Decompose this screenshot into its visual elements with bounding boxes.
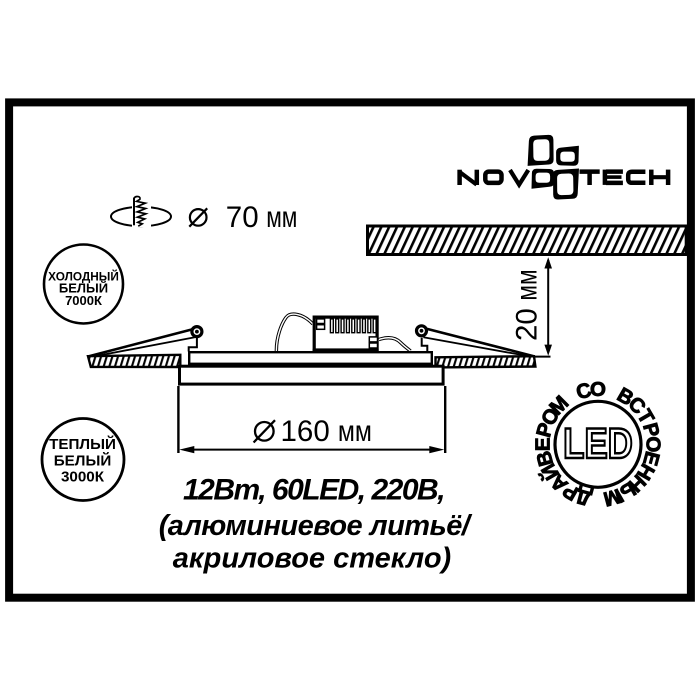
svg-text:20: 20 (511, 308, 544, 341)
svg-text:12Вт, 60LED, 220В,: 12Вт, 60LED, 220В, (183, 474, 444, 507)
svg-text:3000К: 3000К (61, 469, 105, 486)
svg-text:мм: мм (510, 269, 544, 300)
svg-text:О: О (590, 378, 606, 401)
svg-text:7000К: 7000К (65, 293, 102, 308)
svg-text:70: 70 (226, 201, 259, 234)
svg-text:ТЕПЛЫЙ: ТЕПЛЫЙ (49, 435, 116, 453)
svg-text:LED: LED (563, 421, 633, 468)
svg-text:БЕЛЫЙ: БЕЛЫЙ (54, 451, 112, 469)
svg-text:мм: мм (338, 414, 372, 448)
svg-text:160: 160 (281, 415, 330, 448)
svg-text:мм: мм (266, 200, 297, 234)
svg-text:акриловое стекло): акриловое стекло) (173, 543, 451, 575)
svg-text:(алюминиевое литьё/: (алюминиевое литьё/ (159, 510, 473, 542)
